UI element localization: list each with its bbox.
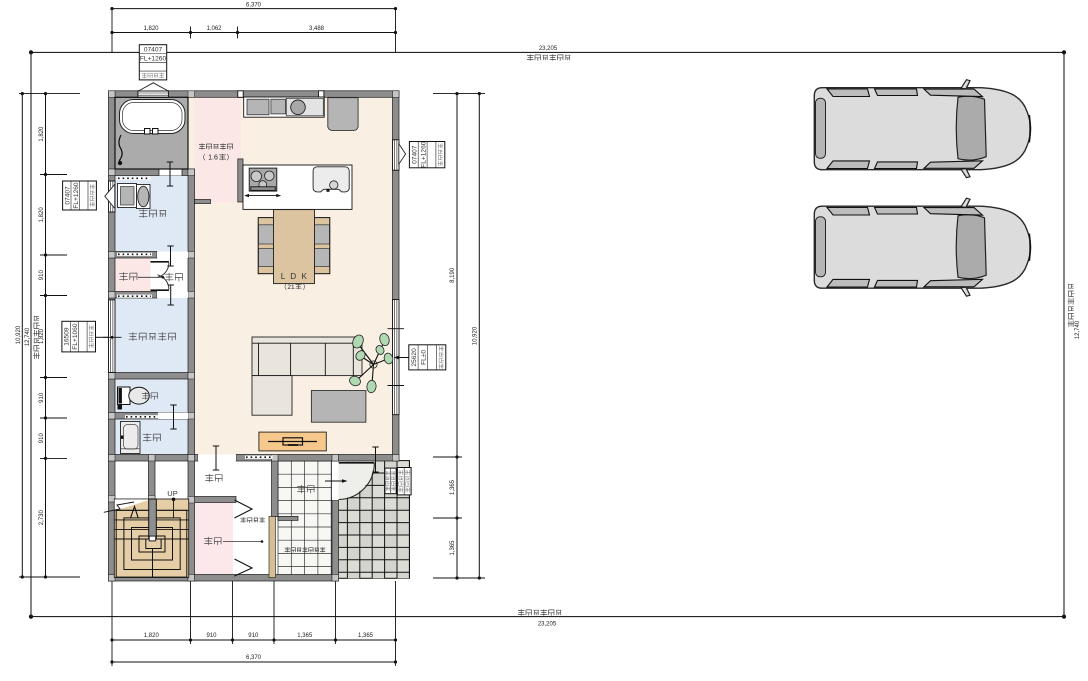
svg-text:910: 910	[39, 433, 45, 444]
svg-text:16509: 16509	[64, 327, 71, 346]
svg-text:10,920: 10,920	[473, 326, 479, 345]
svg-text:8,190: 8,190	[450, 267, 456, 283]
svg-text:）: ）	[227, 154, 234, 162]
svg-text:FL±0: FL±0	[420, 350, 427, 365]
svg-text:L D K: L D K	[281, 272, 309, 281]
svg-text:6,370: 6,370	[246, 655, 262, 661]
svg-text:1,365: 1,365	[450, 479, 456, 495]
svg-text:910: 910	[206, 633, 217, 639]
svg-text:（: （	[199, 154, 206, 162]
svg-text:21: 21	[287, 284, 295, 291]
svg-text:（: （	[280, 283, 287, 291]
svg-text:1,365: 1,365	[297, 633, 313, 639]
svg-text:）: ）	[303, 283, 310, 291]
svg-text:FL+1260: FL+1260	[140, 56, 167, 63]
svg-text:07407: 07407	[64, 186, 71, 205]
svg-text:23,205: 23,205	[538, 622, 557, 628]
svg-text:3,488: 3,488	[309, 26, 325, 32]
svg-text:12,740: 12,740	[25, 327, 31, 346]
svg-text:10,920: 10,920	[16, 325, 22, 344]
svg-text:1,820: 1,820	[39, 207, 45, 223]
svg-text:1,820: 1,820	[144, 633, 160, 639]
svg-text:910: 910	[248, 633, 259, 639]
svg-text:07407: 07407	[412, 145, 419, 164]
svg-text:1,365: 1,365	[450, 540, 456, 556]
svg-text:12,740: 12,740	[1075, 320, 1081, 339]
svg-text:1,820: 1,820	[39, 328, 45, 344]
svg-text:1,062: 1,062	[206, 26, 222, 32]
svg-text:FL+1260: FL+1260	[420, 141, 427, 168]
svg-text:910: 910	[39, 392, 45, 403]
svg-text:UP: UP	[167, 489, 177, 498]
svg-text:910: 910	[39, 270, 45, 281]
svg-text:6,370: 6,370	[246, 3, 262, 9]
svg-text:2,730: 2,730	[39, 510, 45, 526]
svg-text:23,205: 23,205	[539, 46, 558, 52]
svg-text:1,365: 1,365	[358, 633, 374, 639]
svg-text:1,820: 1,820	[39, 126, 45, 142]
svg-text:07407: 07407	[144, 47, 163, 54]
svg-text:FL+1260: FL+1260	[73, 182, 80, 209]
svg-text:1,820: 1,820	[143, 26, 159, 32]
svg-text:25620: 25620	[411, 348, 418, 367]
svg-text:1.6: 1.6	[208, 155, 218, 162]
svg-text:FL+1060: FL+1060	[72, 323, 79, 350]
